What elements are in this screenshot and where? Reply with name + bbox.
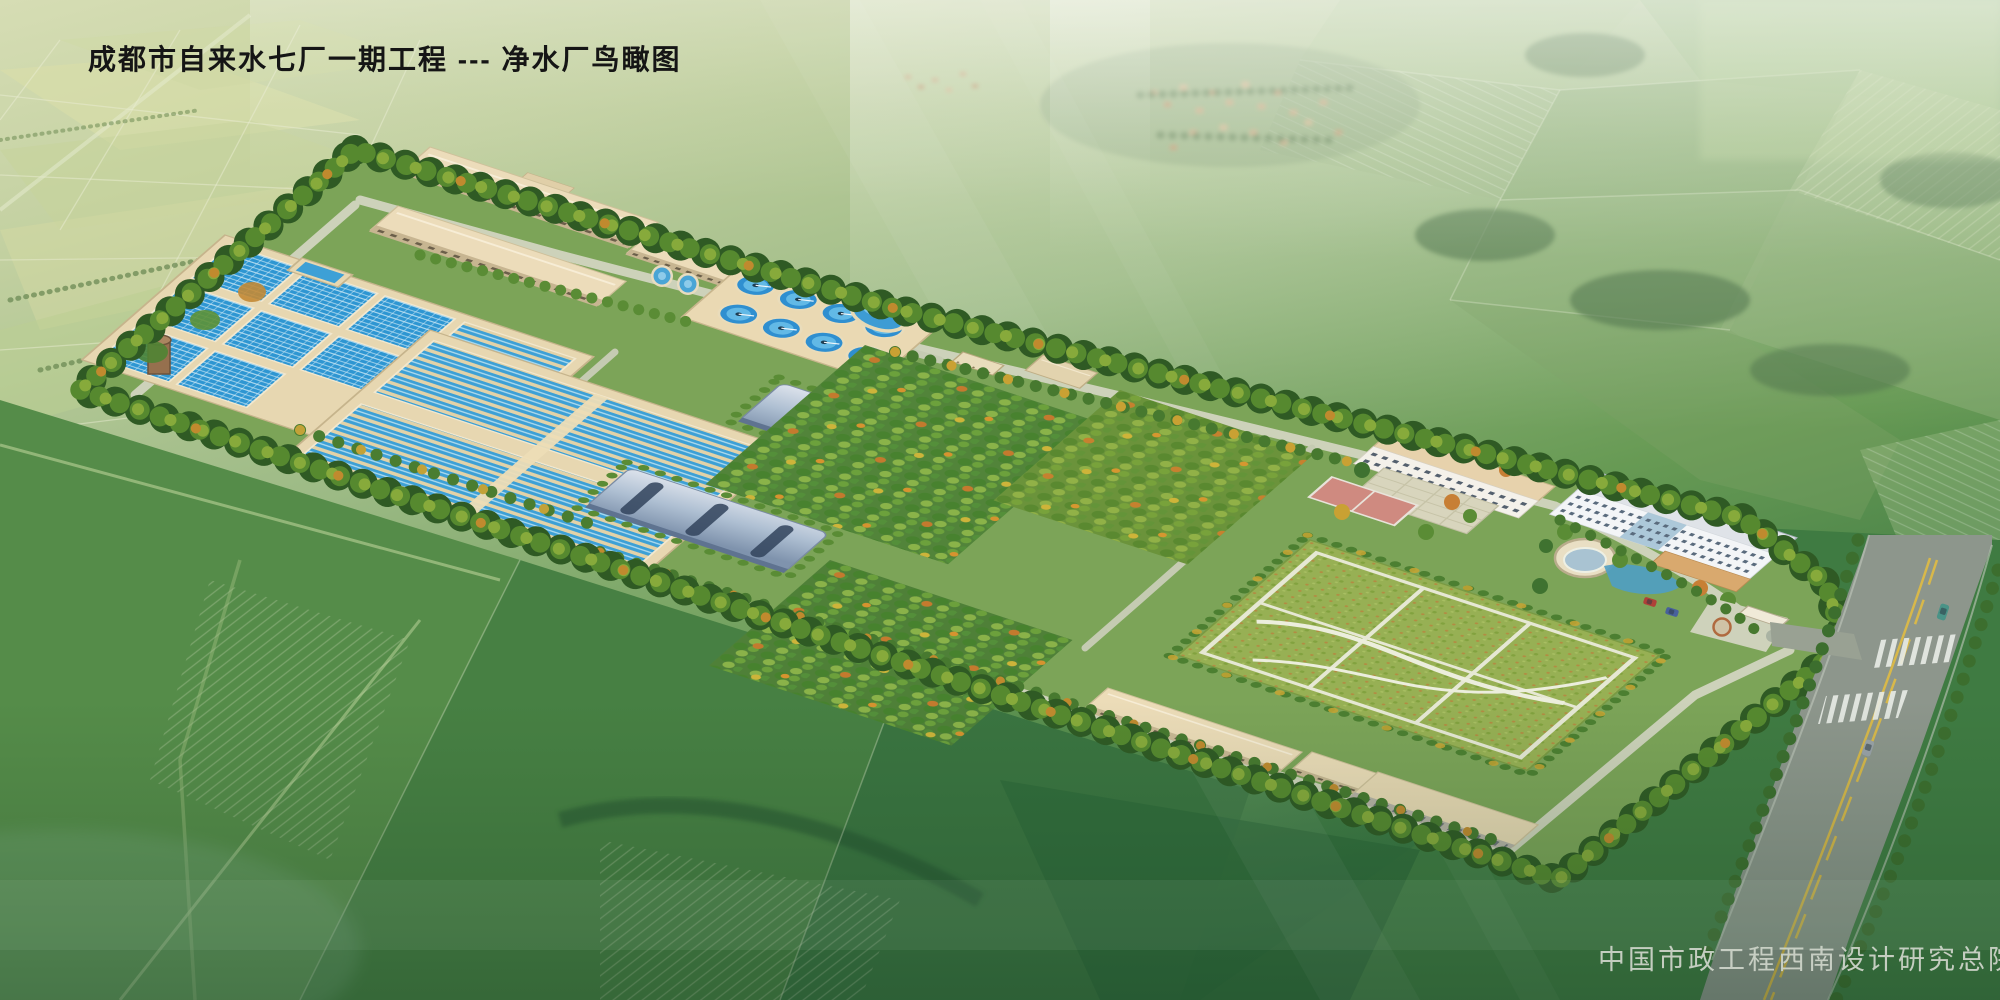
flower-bed-emblem <box>1714 619 1731 636</box>
pavilion-glass <box>1564 548 1606 572</box>
tree-cluster <box>190 310 220 330</box>
chemical-round-tank <box>651 265 673 287</box>
design-institute-credit: 中国市政工程西南设计研究总院 <box>1598 938 2000 977</box>
drawing-title: 成都市自来水七厂一期工程 --- 净水厂鸟瞰图 <box>88 38 682 78</box>
chemical-round-tank <box>677 273 699 295</box>
aerial-rendering-svg <box>0 0 2000 1000</box>
rendering-canvas: 成都市自来水七厂一期工程 --- 净水厂鸟瞰图 中国市政工程西南设计研究总院 <box>0 0 2000 1000</box>
mist-band <box>1050 0 2000 260</box>
tree-cluster-autumn <box>238 282 266 302</box>
